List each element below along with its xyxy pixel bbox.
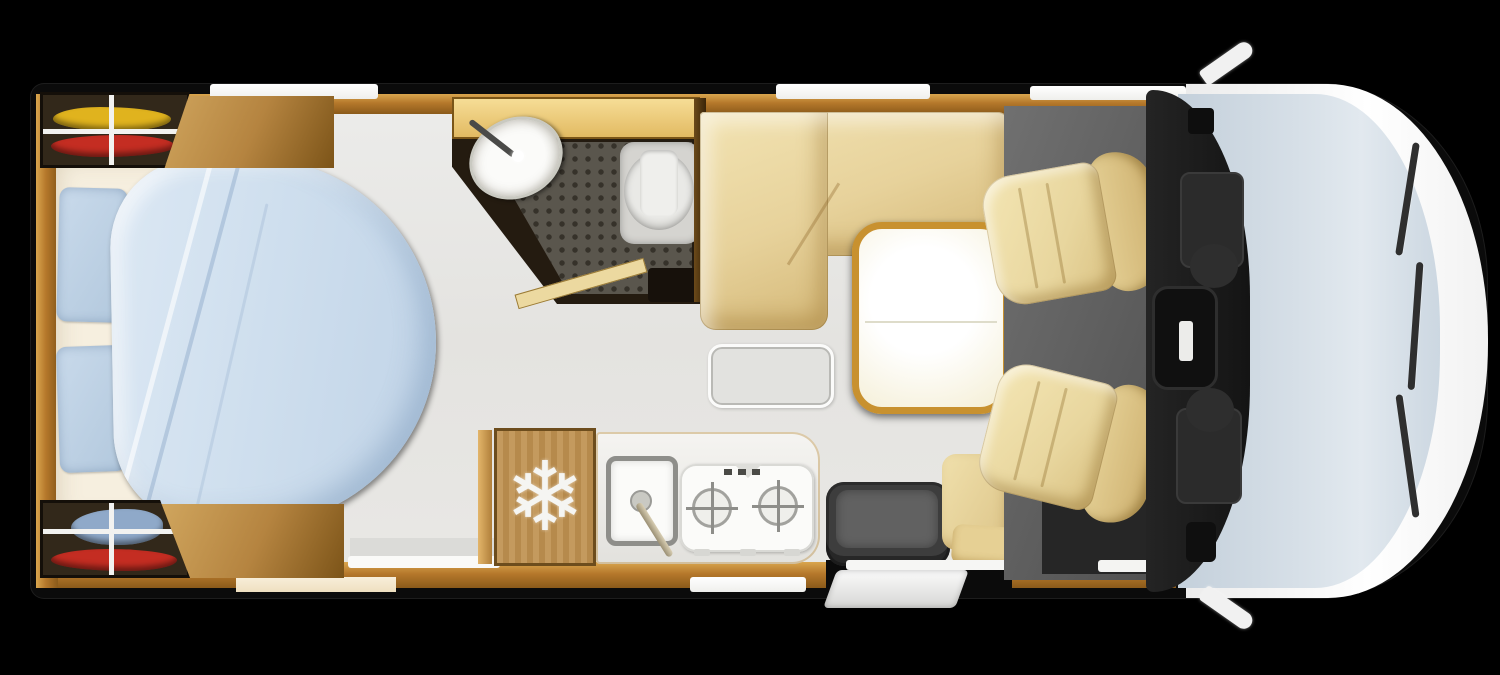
motorhome-floorplan-canvas: ❄ [0,0,1500,675]
duvet-fold-line [180,203,268,528]
dashboard-bump [1186,388,1234,432]
seat-seam [1040,388,1068,488]
floor-hatch [708,344,834,408]
hob-control-knob [752,469,760,475]
hob-burner-left [692,488,732,528]
seat-seam [1013,381,1041,481]
gas-hob [680,464,814,552]
storage-divider-horizontal [43,129,178,134]
snowflake-icon: ❄ [505,449,585,545]
dashboard-console-small [1188,108,1214,134]
window-top-dinette [776,84,930,99]
hob-burner-right [758,486,798,526]
storage-divider-vertical [109,503,114,575]
bathroom-cabinet [648,268,700,302]
table-seam [865,321,997,323]
storage-divider-horizontal [43,529,178,534]
hob-control-knob [724,469,732,475]
toilet-lid [640,150,678,216]
seat-cushion [978,160,1119,309]
window-bottom-kitchen [690,577,806,592]
duvet-fold-line [109,156,215,529]
seat-seam [1018,188,1039,289]
driver-seat [977,146,1171,314]
refrigerator: ❄ [494,428,596,566]
side-mirror-top [1198,39,1255,86]
dashboard-console-bottom [1176,408,1242,504]
ottoman-seat [826,482,950,566]
hob-tab [694,549,710,556]
seat-seam [1045,183,1066,284]
dashboard-bump [1190,244,1238,288]
ottoman-top [836,490,938,548]
dinette-bench-arm [700,112,828,330]
entry-door-sill [846,560,1010,570]
dinette-table [852,222,1010,414]
hob-control-knob [738,469,746,475]
gear-blue-icon [71,509,163,545]
steering-wheel [1152,286,1218,390]
fridge-side-panel [478,430,492,564]
duvet-fold-line [133,166,240,529]
hob-tab [740,549,756,556]
dashboard-console-small [1186,522,1216,562]
garage-storage-top [40,92,190,168]
window-bottom-bedroom [236,577,396,592]
basin-faucet-head [512,150,524,162]
hob-tab [784,549,800,556]
dashboard-console-top [1180,172,1244,268]
gear-red-icon [51,549,177,571]
entry-step [823,570,969,608]
steering-column [1179,321,1193,361]
